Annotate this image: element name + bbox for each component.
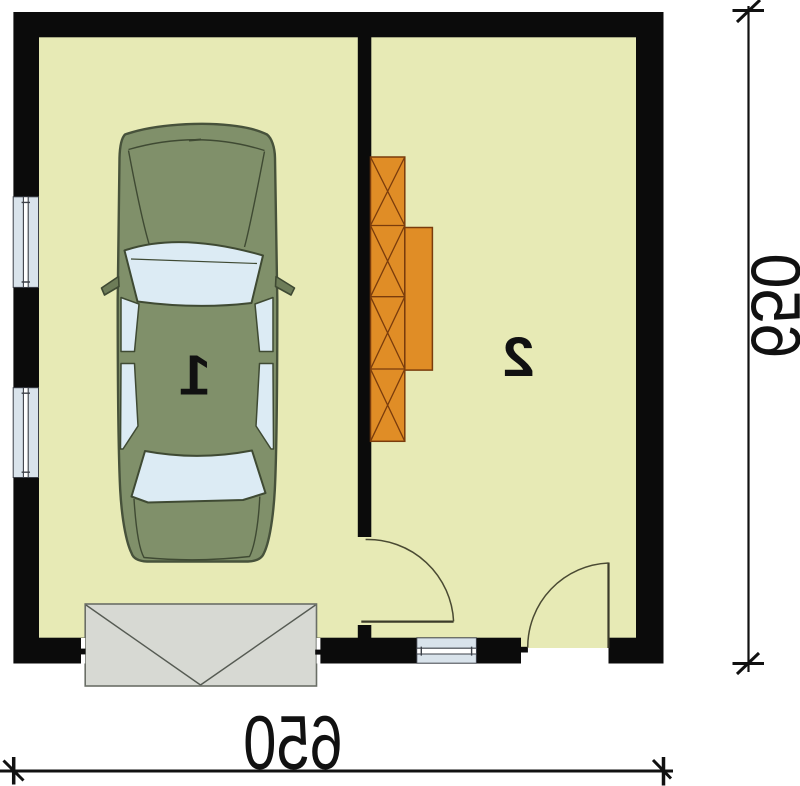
svg-text:650: 650 (243, 701, 343, 786)
svg-text:650: 650 (736, 253, 800, 358)
svg-text:2: 2 (503, 326, 535, 388)
svg-text:1: 1 (179, 344, 211, 408)
